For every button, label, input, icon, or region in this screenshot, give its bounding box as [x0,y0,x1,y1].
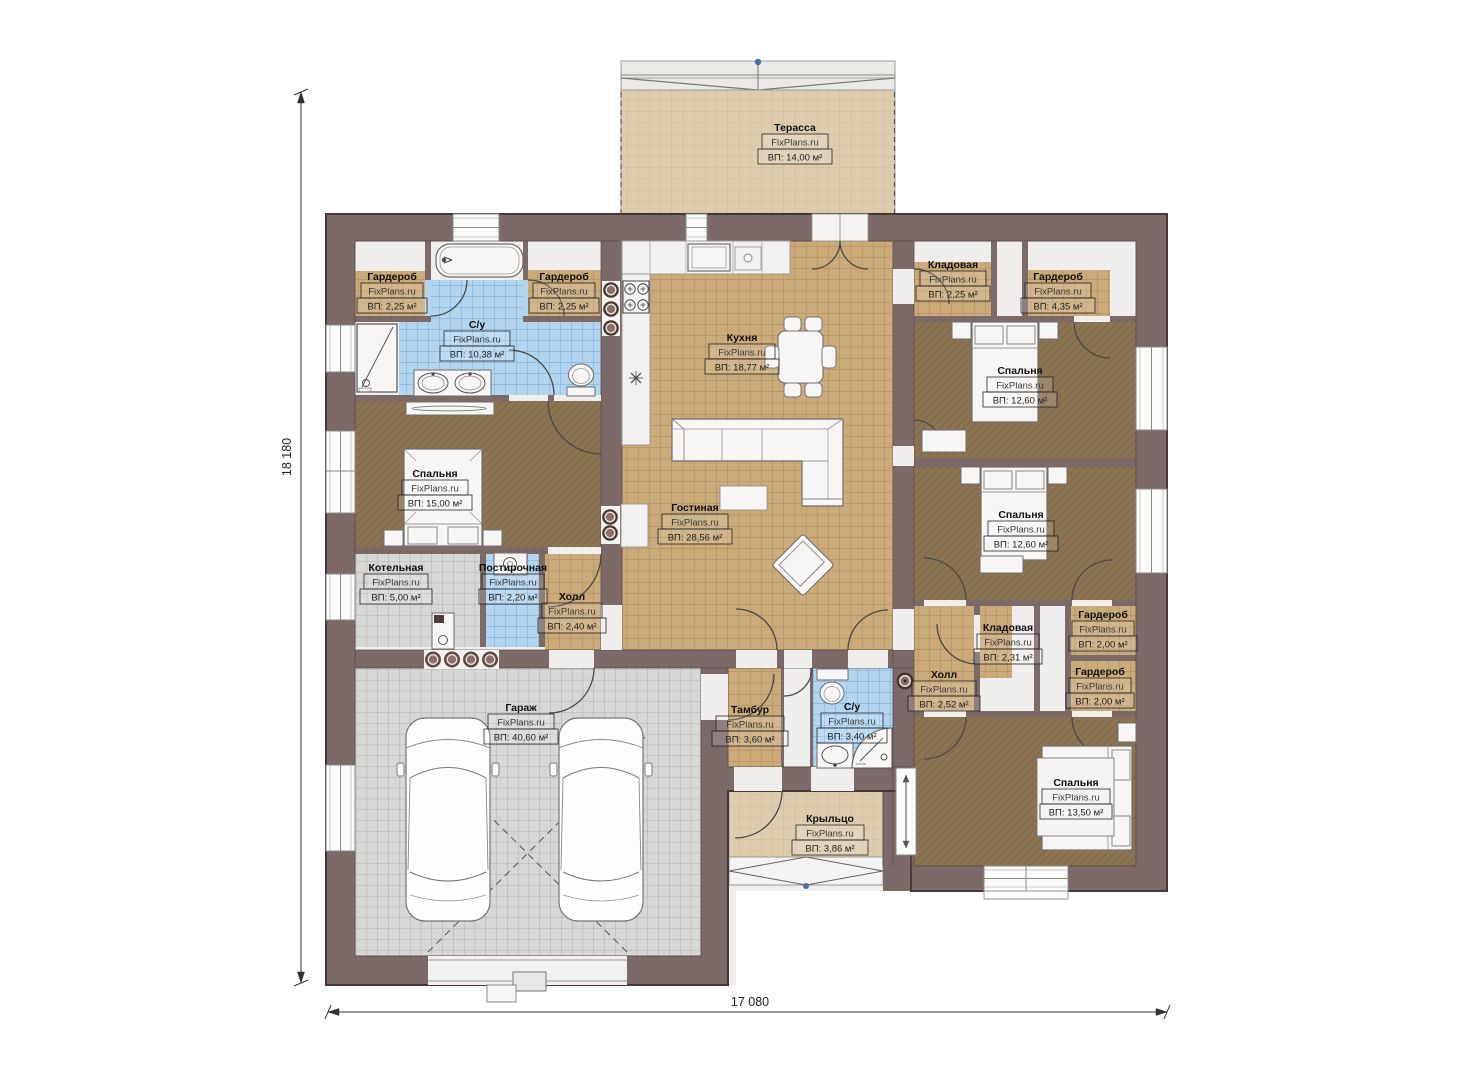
svg-text:ВП: 28,56 м²: ВП: 28,56 м² [668,533,723,544]
svg-text:FixPlans.ru: FixPlans.ru [718,348,766,359]
svg-text:FixPlans.ru: FixPlans.ru [1052,793,1100,804]
svg-text:Спальня: Спальня [998,509,1043,521]
svg-text:FixPlans.ru: FixPlans.ru [453,335,501,346]
svg-text:Гардероб: Гардероб [539,271,589,283]
svg-text:Гардероб: Гардероб [1078,609,1128,621]
svg-text:18 180: 18 180 [280,438,294,476]
svg-text:Гараж: Гараж [505,702,537,714]
svg-text:Спальня: Спальня [997,365,1042,377]
svg-text:Тамбур: Тамбур [731,704,769,716]
svg-text:FixPlans.ru: FixPlans.ru [1034,287,1082,298]
svg-text:FixPlans.ru: FixPlans.ru [548,607,596,618]
svg-text:17 080: 17 080 [731,995,769,1009]
svg-text:FixPlans.ru: FixPlans.ru [929,275,977,286]
svg-text:ВП: 10,38 м²: ВП: 10,38 м² [450,350,505,361]
svg-text:ВП: 2,40 м²: ВП: 2,40 м² [547,622,596,633]
svg-text:Кладовая: Кладовая [928,259,978,271]
svg-text:Крыльцо: Крыльцо [806,813,854,825]
svg-text:ВП: 2,00 м²: ВП: 2,00 м² [1078,640,1127,651]
svg-text:FixPlans.ru: FixPlans.ru [920,685,968,696]
svg-text:ВП: 2,25 м²: ВП: 2,25 м² [928,290,977,301]
svg-text:ВП: 2,31 м²: ВП: 2,31 м² [983,653,1032,664]
svg-text:ВП: 4,35 м²: ВП: 4,35 м² [1033,302,1082,313]
svg-text:FixPlans.ru: FixPlans.ru [1079,625,1127,636]
svg-text:ВП: 3,86 м²: ВП: 3,86 м² [805,844,854,855]
svg-text:FixPlans.ru: FixPlans.ru [497,718,545,729]
svg-text:Холл: Холл [931,669,957,681]
svg-text:FixPlans.ru: FixPlans.ru [771,138,819,149]
svg-text:Терасса: Терасса [774,122,816,134]
svg-text:FixPlans.ru: FixPlans.ru [828,717,876,728]
svg-text:ВП: 12,60 м²: ВП: 12,60 м² [994,540,1049,551]
svg-text:Спальня: Спальня [412,468,457,480]
svg-text:Гардероб: Гардероб [367,271,417,283]
svg-text:ВП: 12,60 м²: ВП: 12,60 м² [993,396,1048,407]
svg-text:ВП: 3,60 м²: ВП: 3,60 м² [725,735,774,746]
svg-text:ВП: 40,60 м²: ВП: 40,60 м² [494,733,549,744]
svg-text:ВП: 2,52 м²: ВП: 2,52 м² [919,700,968,711]
svg-text:FixPlans.ru: FixPlans.ru [540,287,588,298]
svg-text:ВП: 18,77 м²: ВП: 18,77 м² [715,363,770,374]
svg-text:FixPlans.ru: FixPlans.ru [368,287,416,298]
svg-text:Гостиная: Гостиная [671,502,718,514]
svg-text:ВП: 2,00 м²: ВП: 2,00 м² [1075,697,1124,708]
svg-text:Гардероб: Гардероб [1075,666,1125,678]
svg-text:Холл: Холл [559,591,585,603]
svg-text:Кухня: Кухня [727,332,758,344]
svg-text:ВП: 15,00 м²: ВП: 15,00 м² [408,499,463,510]
svg-text:ВП: 5,00 м²: ВП: 5,00 м² [371,593,420,604]
svg-text:ВП: 2,20 м²: ВП: 2,20 м² [488,593,537,604]
svg-text:ВП: 14,00 м²: ВП: 14,00 м² [768,153,823,164]
svg-text:FixPlans.ru: FixPlans.ru [806,829,854,840]
svg-text:FixPlans.ru: FixPlans.ru [372,578,420,589]
svg-text:FixPlans.ru: FixPlans.ru [489,578,537,589]
svg-text:FixPlans.ru: FixPlans.ru [1076,682,1124,693]
svg-text:FixPlans.ru: FixPlans.ru [997,525,1045,536]
svg-text:FixPlans.ru: FixPlans.ru [984,638,1032,649]
svg-text:FixPlans.ru: FixPlans.ru [996,381,1044,392]
svg-text:ВП: 3,40 м²: ВП: 3,40 м² [827,732,876,743]
svg-text:Спальня: Спальня [1053,777,1098,789]
svg-text:ВП: 2,25 м²: ВП: 2,25 м² [539,302,588,313]
svg-text:ВП: 2,25 м²: ВП: 2,25 м² [367,302,416,313]
svg-text:FixPlans.ru: FixPlans.ru [726,720,774,731]
svg-text:С/у: С/у [469,319,486,331]
svg-text:Котельная: Котельная [369,562,424,574]
svg-text:FixPlans.ru: FixPlans.ru [671,518,719,529]
svg-text:Кладовая: Кладовая [983,622,1033,634]
svg-text:Постирочная: Постирочная [479,562,547,574]
svg-text:ВП: 13,50 м²: ВП: 13,50 м² [1049,808,1104,819]
svg-text:FixPlans.ru: FixPlans.ru [411,484,459,495]
svg-text:С/у: С/у [844,701,861,713]
svg-text:Гардероб: Гардероб [1033,271,1083,283]
